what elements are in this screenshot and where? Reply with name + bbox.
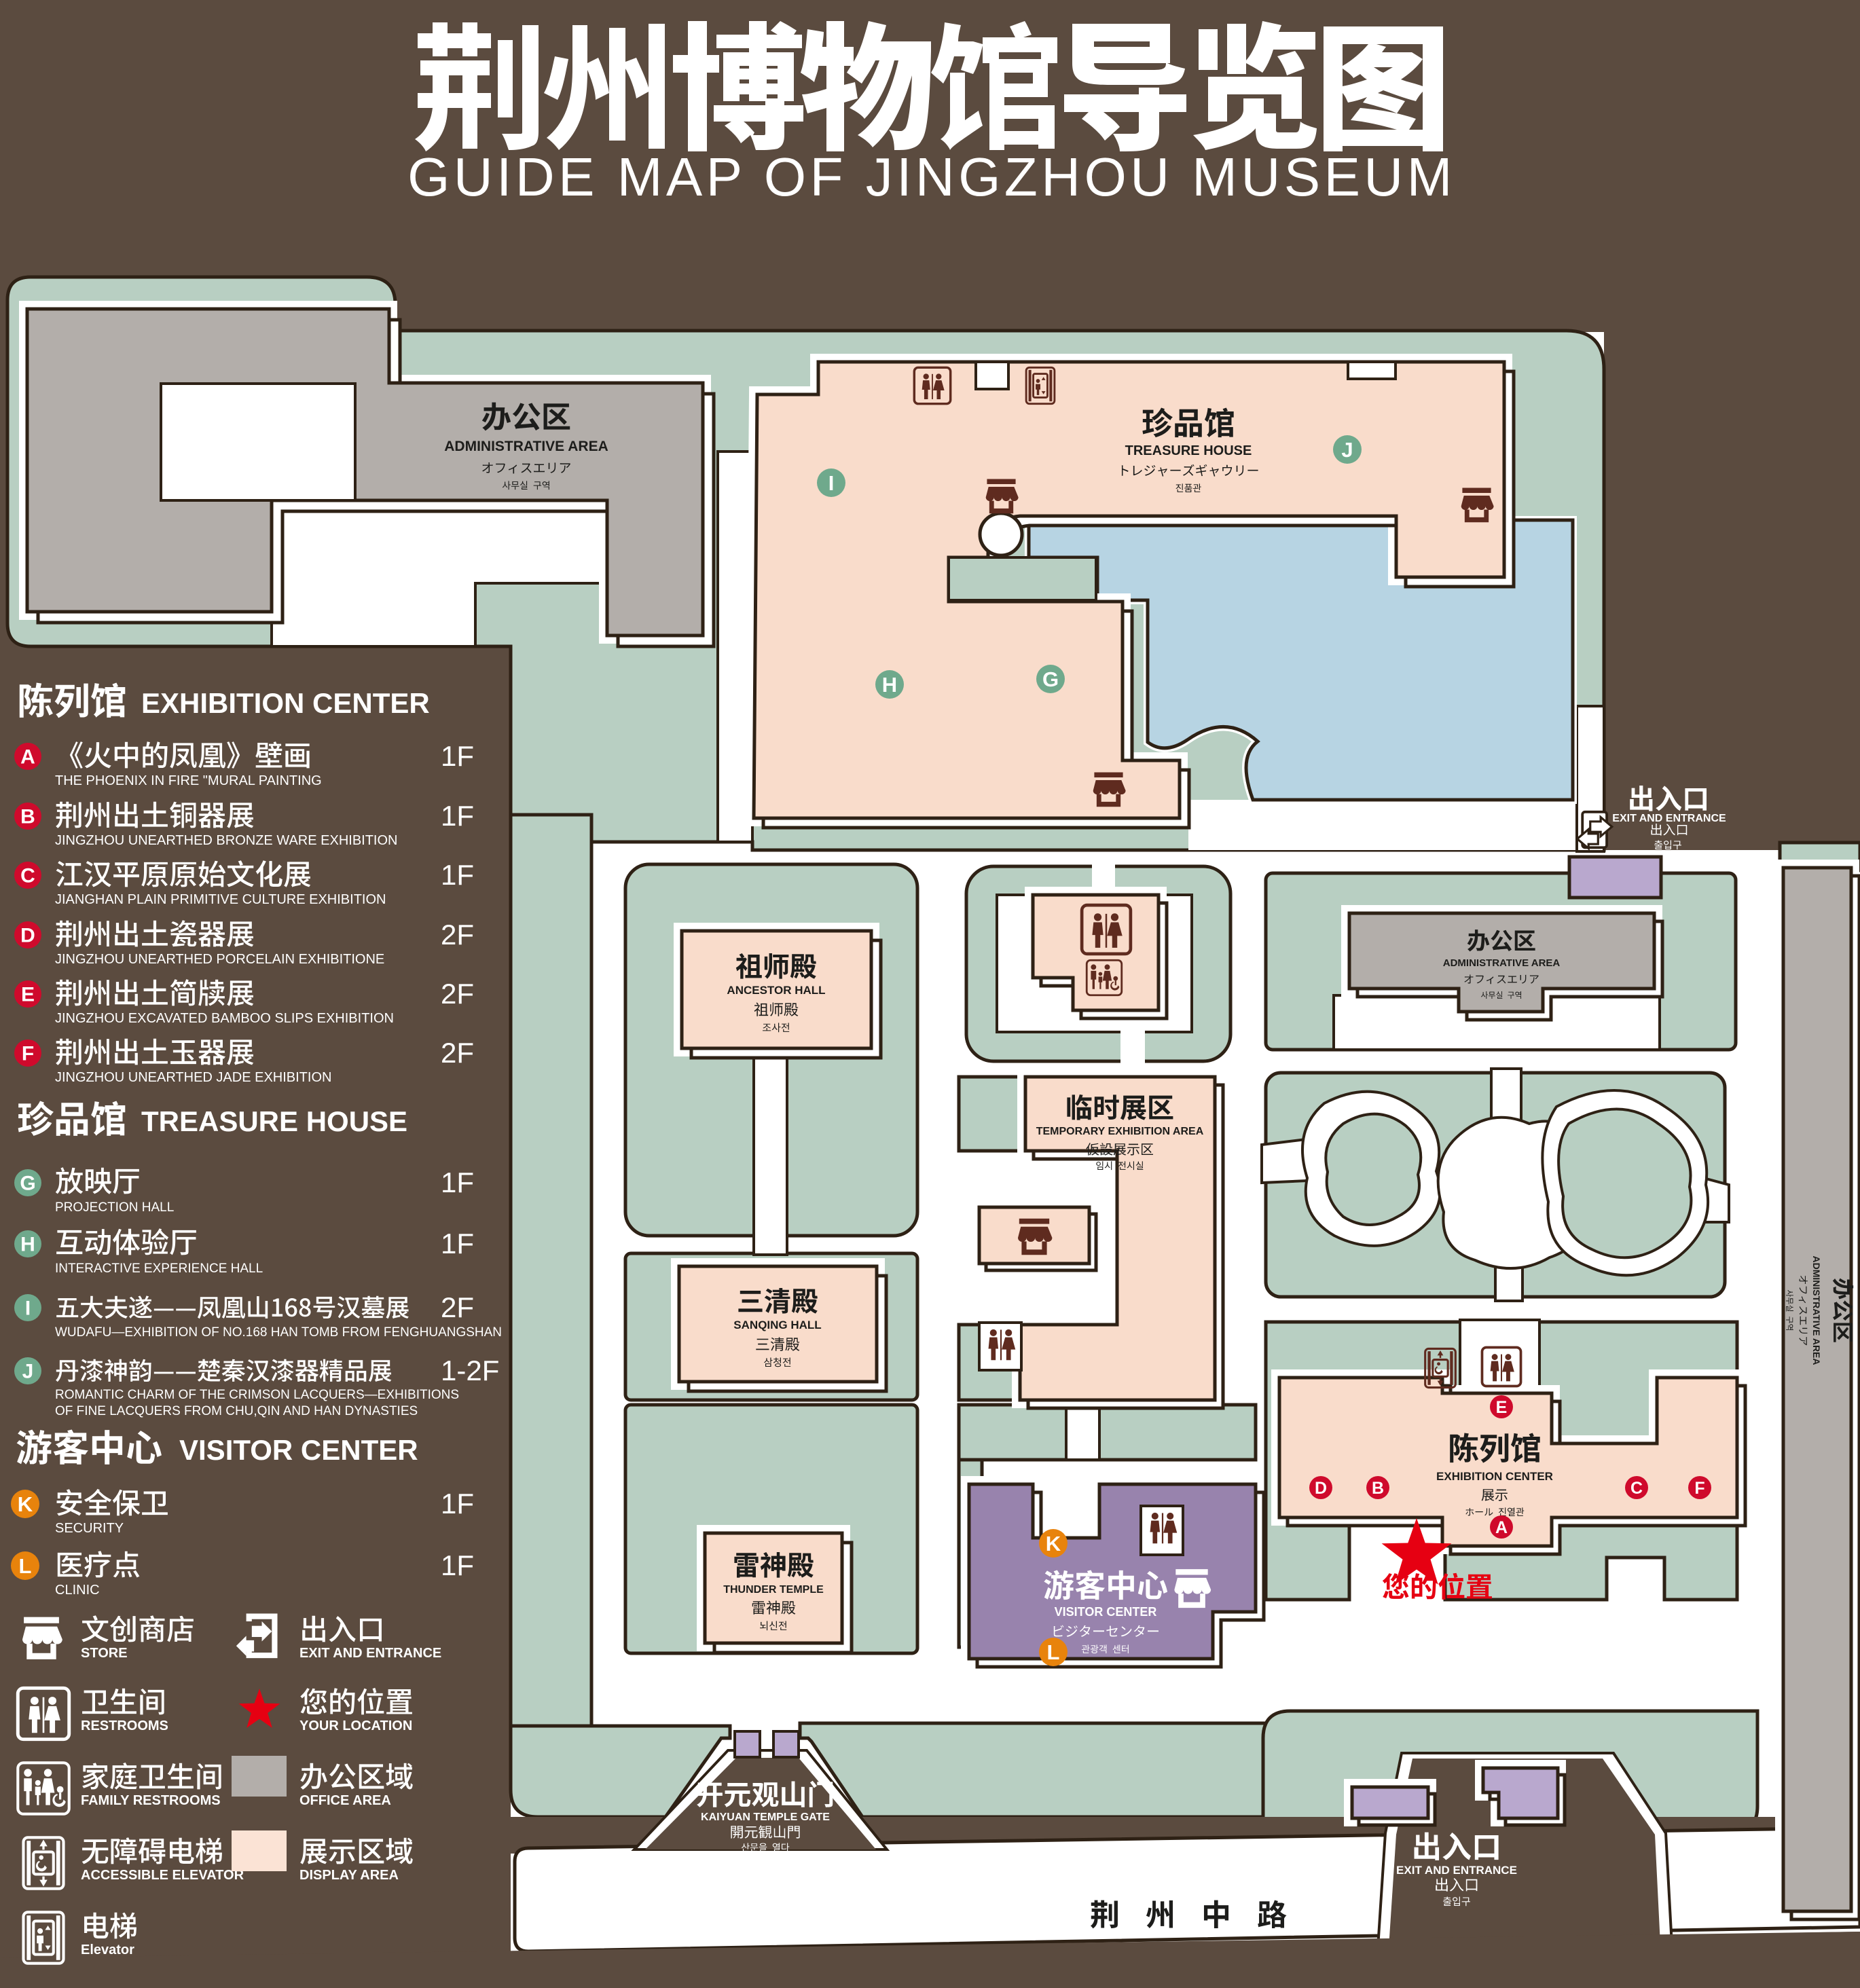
svg-text:1F: 1F [441,800,474,832]
svg-text:JINGZHOU UNEARTHED PORCELAIN E: JINGZHOU UNEARTHED PORCELAIN EXHIBITIONE [55,952,384,967]
svg-text:1-2F: 1-2F [441,1355,499,1386]
svg-text:2F: 2F [441,1291,474,1323]
svg-text:RESTROOMS: RESTROOMS [81,1718,168,1733]
svg-text:A: A [20,746,35,769]
svg-text:B: B [1372,1479,1384,1498]
svg-text:C: C [1630,1479,1643,1498]
svg-text:E: E [1496,1398,1508,1417]
svg-text:VISITOR CENTER: VISITOR CENTER [1055,1605,1157,1619]
svg-text:2F: 2F [441,919,474,951]
svg-text:JINGZHOU UNEARTHED BRONZE WARE: JINGZHOU UNEARTHED BRONZE WARE EXHIBITIO… [55,833,397,848]
svg-text:B: B [20,806,35,828]
svg-text:EXIT AND ENTRANCE: EXIT AND ENTRANCE [299,1646,441,1661]
svg-text:SECURITY: SECURITY [55,1521,124,1536]
svg-text:1F: 1F [441,1228,474,1259]
svg-text:INTERACTIVE EXPERIENCE HALL: INTERACTIVE EXPERIENCE HALL [55,1262,263,1276]
svg-text:STORE: STORE [81,1646,128,1661]
svg-text:ACCESSIBLE ELEVATOR: ACCESSIBLE ELEVATOR [81,1868,244,1883]
svg-text:KAIYUAN TEMPLE GATE: KAIYUAN TEMPLE GATE [701,1811,830,1823]
svg-text:DISPLAY AREA: DISPLAY AREA [299,1868,399,1883]
svg-text:TREASURE HOUSE: TREASURE HOUSE [141,1105,407,1137]
svg-text:TREASURE HOUSE: TREASURE HOUSE [1125,443,1252,458]
svg-text:EXHIBITION CENTER: EXHIBITION CENTER [141,687,430,719]
svg-text:F: F [1694,1479,1704,1498]
svg-text:1F: 1F [441,859,474,891]
svg-text:1F: 1F [441,1488,474,1520]
svg-text:D: D [20,925,35,947]
svg-text:L: L [19,1554,32,1578]
svg-text:K: K [18,1492,33,1516]
svg-text:H: H [882,673,897,697]
svg-text:1F: 1F [441,740,474,772]
svg-text:2F: 2F [441,1037,474,1069]
svg-text:JINGZHOU EXCAVATED BAMBOO SLIP: JINGZHOU EXCAVATED BAMBOO SLIPS EXHIBITI… [55,1011,394,1026]
svg-text:ADMINISTRATIVE AREA: ADMINISTRATIVE AREA [1443,957,1561,969]
svg-text:K: K [1046,1532,1061,1556]
svg-text:OFFICE AREA: OFFICE AREA [299,1793,391,1808]
svg-text:THE PHOENIX IN FIRE "MURAL PAI: THE PHOENIX IN FIRE "MURAL PAINTING [55,773,322,788]
svg-text:F: F [22,1043,34,1065]
svg-text:Elevator: Elevator [81,1943,134,1957]
svg-text:ADMINISTRATIVE AREA: ADMINISTRATIVE AREA [1811,1256,1822,1365]
svg-text:ADMINISTRATIVE AREA: ADMINISTRATIVE AREA [444,439,608,454]
svg-text:SANQING HALL: SANQING HALL [733,1319,821,1331]
svg-text:D: D [1315,1479,1327,1498]
svg-text:YOUR LOCATION: YOUR LOCATION [299,1718,412,1733]
svg-text:OF FINE LACQUERS FROM CHU,QIN: OF FINE LACQUERS FROM CHU,QIN AND HAN DY… [55,1404,418,1418]
svg-text:FAMILY RESTROOMS: FAMILY RESTROOMS [81,1793,221,1808]
svg-text:TEMPORARY EXHIBITION AREA: TEMPORARY EXHIBITION AREA [1036,1126,1204,1137]
svg-text:JIANGHAN PLAIN PRIMITIVE CULTU: JIANGHAN PLAIN PRIMITIVE CULTURE EXHIBIT… [55,892,386,907]
svg-text:2F: 2F [441,978,474,1010]
svg-text:J: J [1341,438,1353,462]
svg-text:G: G [20,1173,35,1195]
svg-text:CLINIC: CLINIC [55,1583,100,1598]
svg-text:1F: 1F [441,1166,474,1198]
svg-text:JINGZHOU UNEARTHED JADE EXHIBI: JINGZHOU UNEARTHED JADE EXHIBITION [55,1070,331,1085]
svg-text:I: I [828,471,835,495]
svg-text:J: J [22,1361,34,1383]
svg-text:1F: 1F [441,1549,474,1581]
svg-text:L: L [1047,1640,1060,1664]
svg-text:EXIT AND ENTRANCE: EXIT AND ENTRANCE [1612,813,1726,824]
svg-text:A: A [1495,1518,1508,1537]
svg-text:ROMANTIC CHARM OF THE CRIMSON: ROMANTIC CHARM OF THE CRIMSON LACQUERS—E… [55,1388,459,1402]
svg-text:VISITOR CENTER: VISITOR CENTER [179,1434,418,1466]
svg-text:PROJECTION HALL: PROJECTION HALL [55,1200,174,1215]
svg-text:I: I [25,1297,31,1320]
svg-text:ANCESTOR HALL: ANCESTOR HALL [727,984,825,997]
svg-text:C: C [20,865,35,887]
svg-text:THUNDER TEMPLE: THUNDER TEMPLE [723,1584,824,1596]
svg-text:E: E [21,984,35,1006]
svg-text:GUIDE MAP OF JINGZHOU MUSEUM: GUIDE MAP OF JINGZHOU MUSEUM [407,147,1456,207]
svg-text:EXHIBITION CENTER: EXHIBITION CENTER [1436,1470,1553,1483]
svg-text:WUDAFU—EXHIBITION OF NO.168 HA: WUDAFU—EXHIBITION OF NO.168 HAN TOMB FRO… [55,1325,502,1340]
svg-text:H: H [20,1234,35,1256]
svg-text:G: G [1042,667,1059,691]
svg-text:EXIT AND ENTRANCE: EXIT AND ENTRANCE [1396,1864,1517,1877]
